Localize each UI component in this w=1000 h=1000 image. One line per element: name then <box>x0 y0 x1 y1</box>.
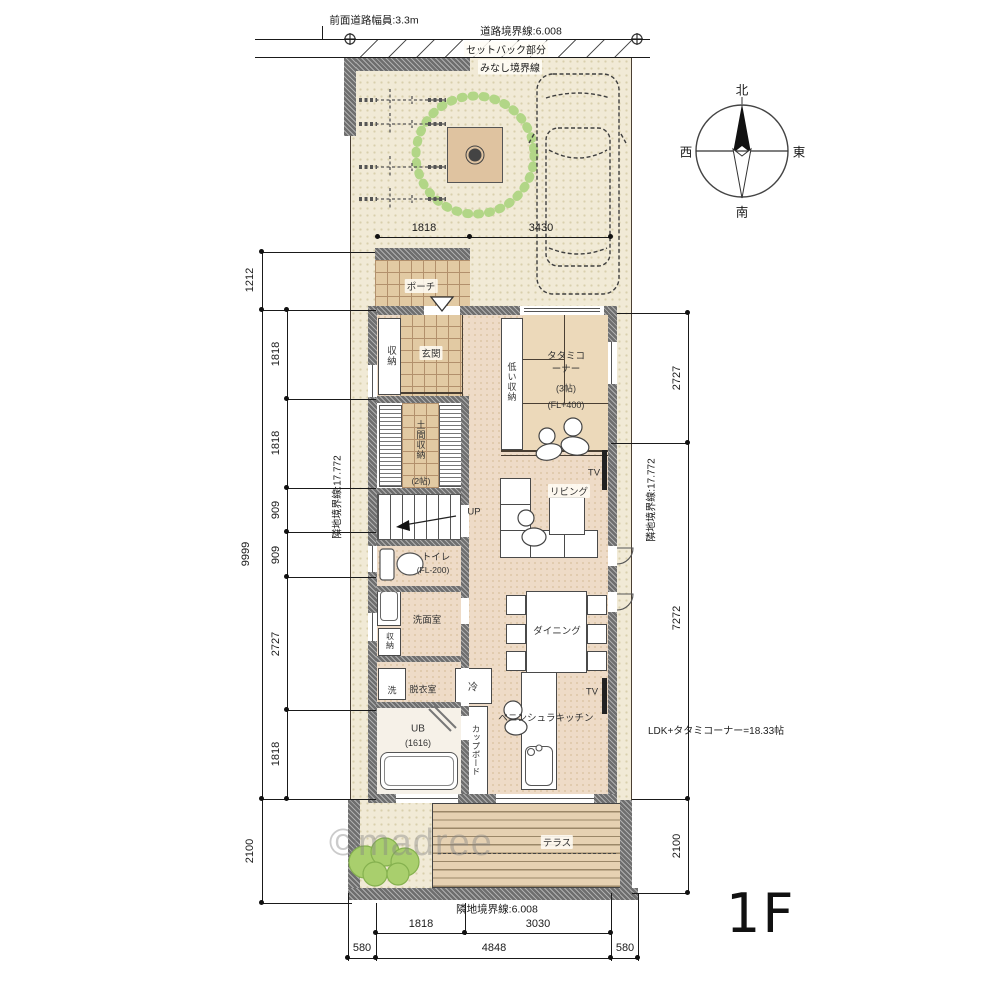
dim-dot <box>373 955 378 960</box>
dim-connector <box>262 903 352 904</box>
dim-left-seg3: 909 <box>270 501 282 519</box>
tatami-platform-edge2 <box>501 455 608 456</box>
washroom-storage-label: 収納 <box>385 632 396 650</box>
dim-connector <box>287 710 376 711</box>
setback-line <box>255 57 650 58</box>
entrance-step-line <box>400 392 463 394</box>
dining-chair <box>506 595 526 615</box>
dim-left-seg2: 1818 <box>270 431 282 455</box>
mid-door-opening-2 <box>461 598 469 624</box>
dim-dot <box>284 796 289 801</box>
compass-east-label: 東 <box>793 142 806 161</box>
entrance-label: 玄関 <box>419 346 442 360</box>
entrance-edge-line <box>462 314 463 396</box>
compass-west-label: 西 <box>680 142 693 161</box>
left-window-3-line <box>372 613 373 641</box>
dim-left-9999: 9999 <box>240 542 252 566</box>
dim-connector <box>632 799 688 800</box>
right-boundary-label: 隣地境界線:17.772 <box>643 458 658 541</box>
left-boundary-label: 隣地境界線:17.772 <box>329 455 344 538</box>
doma-label: 土間収納 <box>415 420 428 460</box>
dim-dot <box>608 234 613 239</box>
dressing-room-label: 脱衣室 <box>409 683 436 696</box>
dim-dot <box>284 396 289 401</box>
dim-dot <box>345 955 350 960</box>
dim-dot <box>259 900 264 905</box>
dim-bottom-580L: 580 <box>353 942 371 954</box>
front-fence-post <box>344 58 356 136</box>
kitchen-label: ペニンシュラキッチン <box>498 710 593 724</box>
partition-3 <box>376 540 461 546</box>
terrace-window-1-line <box>396 798 458 799</box>
compass-needle-south <box>733 149 751 198</box>
dim-dot <box>462 930 467 935</box>
dim-dot <box>373 930 378 935</box>
dim-dot <box>608 955 613 960</box>
terrace-window-2-line <box>496 798 594 799</box>
left-window-2-line <box>372 546 373 572</box>
dim-dot <box>284 529 289 534</box>
watermark: ©madree <box>329 822 493 865</box>
dim-guide <box>638 893 639 961</box>
dim-left-seg4: 909 <box>270 546 282 564</box>
bath-size-label: (1616) <box>405 738 431 748</box>
tv-dining-label: TV <box>586 687 598 698</box>
dim-bottom-580R: 580 <box>616 942 634 954</box>
bathtub-inner <box>384 756 454 786</box>
dim-line-left-inner <box>287 310 288 799</box>
toilet-fl-label: (FL-200) <box>417 565 450 575</box>
sofa-cushion <box>500 504 531 531</box>
right-door-opening-2 <box>608 592 617 612</box>
site-boundary-right-line <box>631 58 632 800</box>
entry-door-opening <box>424 306 460 315</box>
right-window-tatami-line <box>611 342 612 384</box>
dim-connector <box>287 399 376 400</box>
road-boundary-line <box>255 39 650 40</box>
tv-board-dining <box>602 678 607 714</box>
planter-box <box>447 127 503 183</box>
compass-needle-north <box>733 104 751 153</box>
tatami-fl-label: (FL+400) <box>548 400 585 410</box>
doma-rack-right <box>439 405 462 487</box>
dim-connector <box>617 313 688 314</box>
dim-bottom-1818: 1818 <box>409 918 433 930</box>
dining-chair <box>587 595 607 615</box>
low-storage-label: 低い収納 <box>506 362 519 402</box>
terrace-fence-bottom <box>348 888 638 900</box>
dining-chair <box>506 624 526 644</box>
dim-connector <box>632 893 688 894</box>
dim-line-left-outer <box>262 252 263 903</box>
dim-top-1818: 1818 <box>412 222 436 234</box>
dim-connector <box>287 577 376 578</box>
dim-dot <box>635 955 640 960</box>
road-boundary-label: 道路境界線:6.008 <box>480 24 562 39</box>
front-road-width-label: 前面道路幅員:3.3m <box>329 13 418 28</box>
dim-dot <box>284 574 289 579</box>
dim-left-1212: 1212 <box>244 268 256 292</box>
dining-chair <box>506 651 526 671</box>
front-fence <box>344 58 470 71</box>
dim-connector <box>262 799 376 800</box>
fridge-label: 冷 <box>468 679 478 694</box>
sofa-cushion <box>500 478 531 505</box>
living-table <box>549 497 585 535</box>
ldk-area-note: LDK+タタミコーナー=18.33帖 <box>648 722 784 737</box>
cupboard-label: カップボード <box>470 725 482 776</box>
partition-2 <box>376 488 461 494</box>
tatami-top-window-line2 <box>524 311 600 312</box>
compass-icon <box>696 97 788 198</box>
porch-top-band <box>375 248 470 260</box>
dim-dot <box>259 307 264 312</box>
setback-label: セットバック部分 <box>464 42 548 57</box>
floor-plan-canvas: 前面道路幅員:3.3m 道路境界線:6.008 セットバック部分 みなし境界線 … <box>0 0 1000 1000</box>
right-window-tatami <box>608 342 617 384</box>
partition-6 <box>376 702 461 708</box>
right-door-opening-1 <box>608 546 617 566</box>
dim-dot <box>375 234 380 239</box>
dim-bottom-3030: 3030 <box>526 918 550 930</box>
partition-1 <box>376 396 461 403</box>
dim-line-bottom-outer <box>348 958 638 959</box>
dim-dot <box>467 234 472 239</box>
dim-dot <box>284 707 289 712</box>
road-width-tick <box>322 26 323 39</box>
terrace-label: テラス <box>541 835 573 849</box>
dim-line-top <box>378 237 611 238</box>
doma-size-label: (2帖) <box>412 475 431 487</box>
dim-left-seg1: 1818 <box>270 342 282 366</box>
dim-right-2100: 2100 <box>671 834 683 858</box>
porch-label: ポーチ <box>405 279 438 293</box>
bath-label: UB <box>411 724 425 735</box>
dining-chair <box>587 651 607 671</box>
dining-chair <box>587 624 607 644</box>
toilet-label: トイレ <box>422 549 451 563</box>
dim-dot <box>284 307 289 312</box>
dim-left-seg5: 2727 <box>270 632 282 656</box>
stairs-up-label: UP <box>467 507 480 518</box>
dim-dot <box>685 890 690 895</box>
partition-4 <box>376 586 461 592</box>
dim-line-right <box>688 313 689 893</box>
dim-dot <box>685 310 690 315</box>
kitchen-sink <box>525 746 553 786</box>
dim-guide <box>348 893 349 961</box>
mid-door-opening-4 <box>461 716 469 740</box>
dining-label: ダイニング <box>533 623 581 637</box>
dim-dot <box>685 440 690 445</box>
site-boundary-left-line <box>350 58 351 893</box>
dim-dot <box>284 485 289 490</box>
dim-left-seg6: 1818 <box>270 742 282 766</box>
tatami-platform-edge <box>501 450 608 452</box>
vanity-sink <box>380 591 398 621</box>
minashi-boundary-label: みなし境界線 <box>478 60 542 75</box>
bottom-boundary-label: 隣地境界線:6.008 <box>456 902 538 917</box>
tatami-top-window-line1 <box>524 308 600 309</box>
dim-dot <box>259 249 264 254</box>
dim-dot <box>608 930 613 935</box>
dim-guide <box>611 893 612 961</box>
dim-top-3430: 3430 <box>529 222 553 234</box>
dim-connector <box>611 443 688 444</box>
terrace-fence-right <box>620 800 632 900</box>
sofa-cushion <box>500 530 531 558</box>
tv-living-label: TV <box>588 468 600 479</box>
dim-left-2100: 2100 <box>244 839 256 863</box>
entrance-storage-label: 収納 <box>383 346 397 367</box>
floor-title: 1F <box>726 882 795 945</box>
dim-connector <box>262 310 376 311</box>
washer-label: 洗 <box>387 684 396 697</box>
dim-right-2727: 2727 <box>671 366 683 390</box>
living-label: リビング <box>548 484 590 498</box>
dim-dot <box>259 796 264 801</box>
partition-5 <box>376 656 461 662</box>
tatami-size-label: (3帖) <box>556 382 576 395</box>
dim-connector <box>262 252 375 253</box>
dim-bottom-4848: 4848 <box>482 942 506 954</box>
dim-right-7272: 7272 <box>671 606 683 630</box>
compass-north-label: 北 <box>736 80 749 99</box>
washroom-label: 洗面室 <box>413 612 442 626</box>
tv-board-living <box>602 450 607 490</box>
dim-dot <box>685 796 690 801</box>
compass-south-label: 南 <box>736 202 749 221</box>
staircase <box>377 494 461 540</box>
tatami-corner-label: タタミコーナー <box>543 350 589 376</box>
left-window-1-line <box>372 365 373 397</box>
dim-line-bottom-inner <box>376 933 611 934</box>
doma-rack-left <box>379 405 402 487</box>
